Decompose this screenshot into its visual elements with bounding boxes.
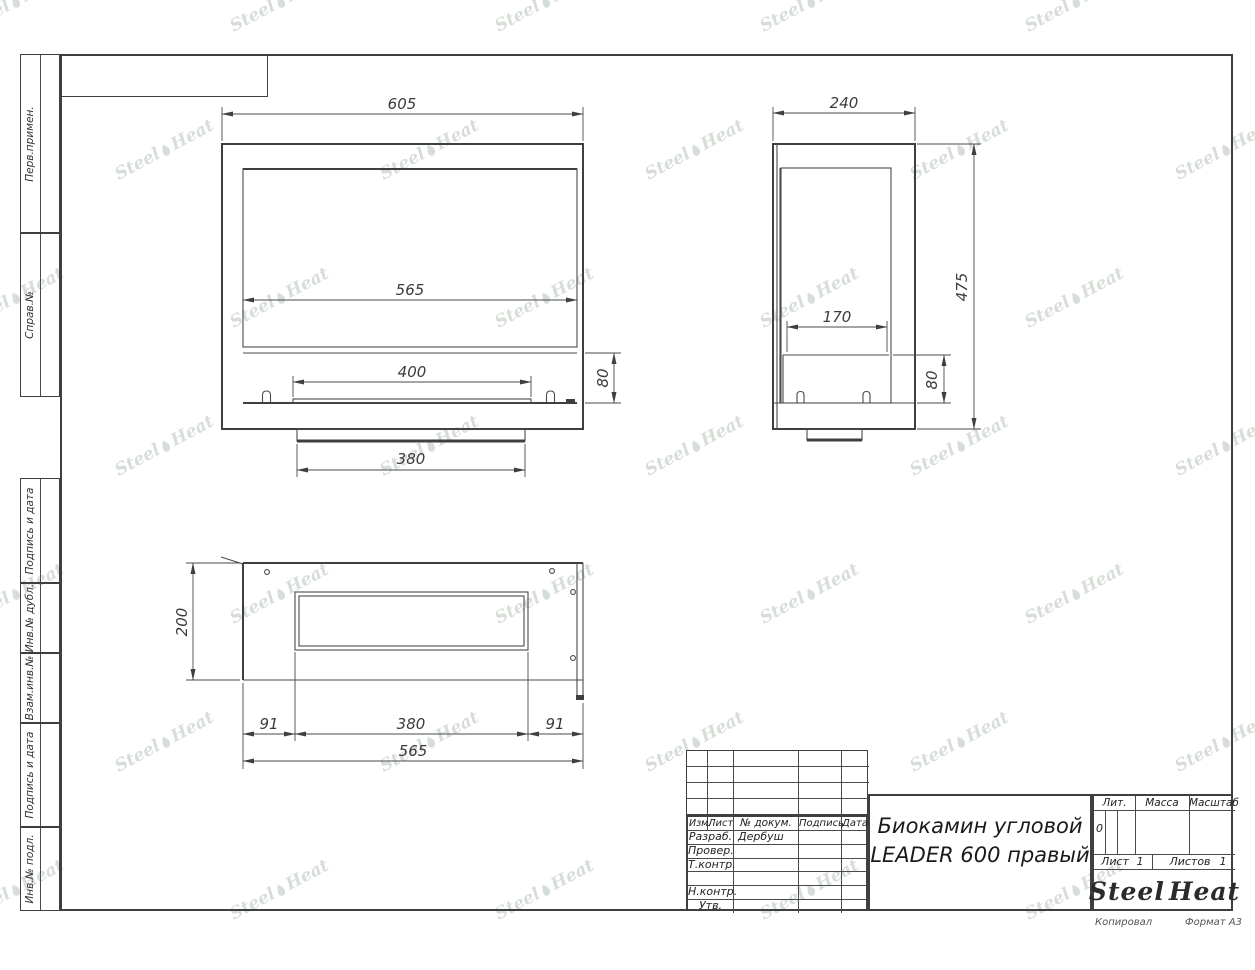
copied-note: Копировал [1095,917,1152,928]
sheets-value: 1 [1216,854,1230,869]
lit-value: 0 [1094,822,1105,835]
side-stamp-inv-dubl: Инв.№ дубл. [20,583,60,653]
logo-steel-text: Steel [1089,877,1165,906]
product-title-line1: Биокамин угловой [878,812,1083,841]
product-title-cell: Биокамин угловой LEADER 600 правый [868,794,1092,911]
signature-table: Изм. Лист № докум. Подпись Дата Разраб. … [686,815,868,911]
row-tkontr: Т.контр. [688,858,733,871]
lit-label: Лит. [1094,796,1135,810]
developer-name: Дербуш [738,830,798,844]
side-stamp-label: Подпись и дата [24,487,36,574]
side-stamp-podpis-data-1: Подпись и дата [20,478,60,583]
company-logo: Steel Heat [1094,869,1235,913]
sheet-frame [60,54,1233,911]
side-stamp-label: Справ.№ [24,291,36,339]
scale-label: Масштаб [1189,796,1235,810]
product-title-line2: LEADER 600 правый [870,841,1089,870]
side-stamp-sprav-no: Справ.№ [20,233,60,397]
row-utv: Утв. [688,899,733,913]
side-stamp-label: Инв.№ дубл. [24,584,36,653]
sheet-value: 1 [1132,854,1148,869]
side-stamp-vzam-inv: Взам.инв.№ [20,653,60,723]
mass-label: Масса [1135,796,1189,810]
title-block-right: Лит. Масса Масштаб 0 Лист 1 Листов 1 Ste… [1092,794,1233,911]
row-nkontr: Н.контр. [688,885,733,899]
col-data: Дата [842,817,868,830]
logo-heat-text: Heat [1169,877,1240,906]
col-list: Лист [708,817,733,830]
revision-table [686,750,868,815]
sheet-label: Лист [1098,854,1132,869]
col-izm: Изм. [689,817,708,830]
side-stamp-label: Инв.№ подл. [24,834,36,903]
row-razrab: Разраб. [688,830,733,844]
side-stamp-label: Взам.инв.№ [24,656,36,721]
side-stamp-inv-podl: Инв.№ подл. [20,827,60,911]
col-docnum: № докум. [734,817,798,830]
top-stamp-box [60,54,268,97]
side-stamp-podpis-data-2: Подпись и дата [20,723,60,827]
col-podpis: Подпись [799,817,841,830]
format-note: Формат А3 [1185,917,1242,928]
side-stamp-label: Перв.примен. [24,106,36,181]
side-stamp-label: Подпись и дата [24,732,36,819]
row-prover: Провер. [688,844,733,858]
sheets-label: Листов [1168,854,1212,869]
side-stamp-perv-primen: Перв.примен. [20,54,60,233]
